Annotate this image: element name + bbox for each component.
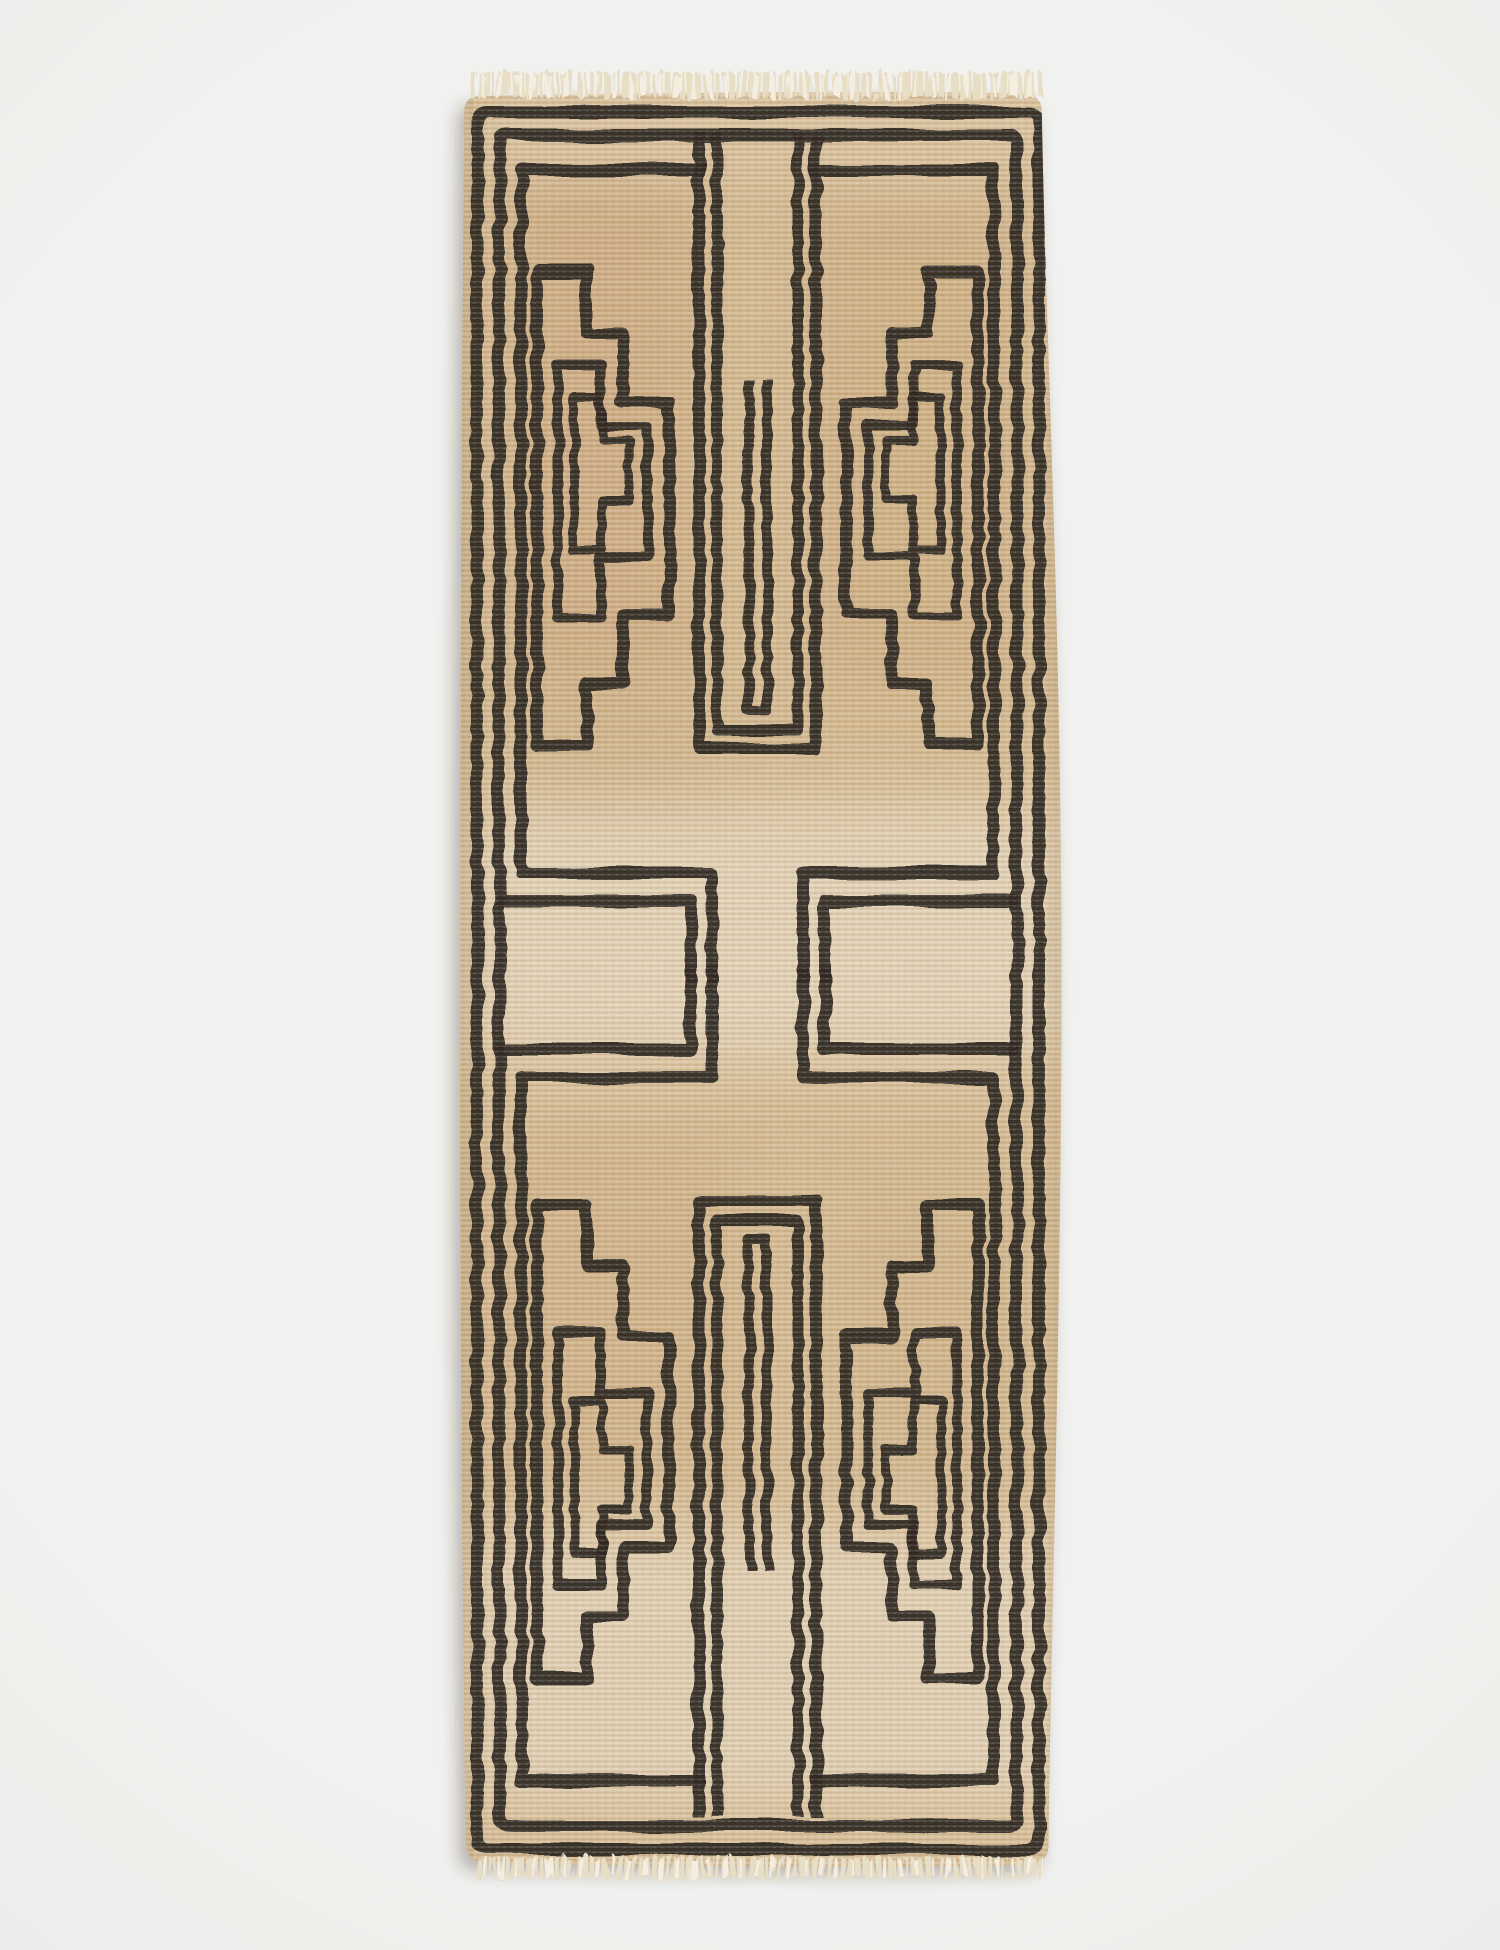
rug-runner-photo: [0, 0, 1500, 1950]
photo-page: { "scene": { "background_color": "#f1f1e…: [0, 0, 1500, 1950]
fringe-bottom: [476, 1857, 1046, 1878]
product-photo-stage: [0, 0, 1500, 1950]
grain-overlay: [455, 88, 1070, 1872]
fringe-top: [472, 72, 1044, 98]
